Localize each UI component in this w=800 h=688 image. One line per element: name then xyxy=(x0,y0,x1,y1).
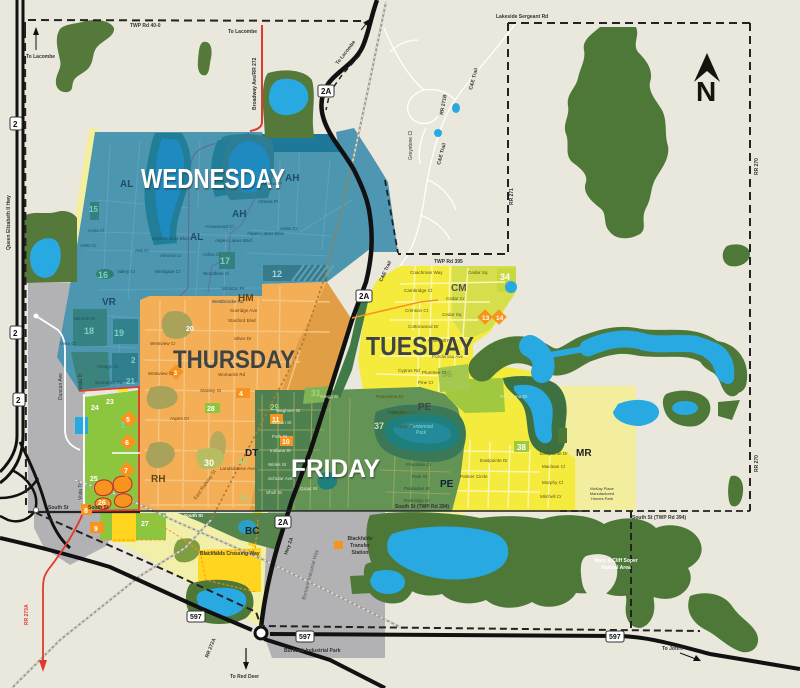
svg-text:Cedar Cr: Cedar Cr xyxy=(446,296,465,301)
svg-text:24: 24 xyxy=(91,405,99,412)
svg-text:Panorama Dr: Panorama Dr xyxy=(376,394,404,399)
svg-text:Woodbine Cl: Woodbine Cl xyxy=(203,271,229,276)
svg-text:30: 30 xyxy=(204,458,214,468)
svg-text:34: 34 xyxy=(500,272,510,282)
svg-text:Blackfalds Crossing Way: Blackfalds Crossing Way xyxy=(200,551,260,557)
svg-text:Eastpointe Dr: Eastpointe Dr xyxy=(540,451,568,456)
svg-text:38: 38 xyxy=(517,443,526,452)
svg-text:Cedar Sq: Cedar Sq xyxy=(468,270,488,275)
svg-text:South St: South St xyxy=(48,505,69,511)
svg-text:Landsdowne Ave: Landsdowne Ave xyxy=(220,466,255,471)
svg-text:Indiana St: Indiana St xyxy=(270,448,291,453)
svg-text:27: 27 xyxy=(141,521,149,528)
svg-text:Almond Cr: Almond Cr xyxy=(160,253,182,258)
svg-text:Park: Park xyxy=(416,430,427,436)
svg-text:Mitchell Cr: Mitchell Cr xyxy=(540,494,562,499)
svg-text:AH: AH xyxy=(232,209,246,220)
svg-text:Adina Cl: Adina Cl xyxy=(203,252,220,257)
svg-text:Vista Tr: Vista Tr xyxy=(78,373,84,390)
svg-text:Aspen Lakes Blvd: Aspen Lakes Blvd xyxy=(152,236,189,241)
svg-text:Broadway Ave/RR 272: Broadway Ave/RR 272 xyxy=(252,57,258,110)
svg-text:Valley Cr: Valley Cr xyxy=(117,269,136,274)
svg-text:17: 17 xyxy=(220,256,230,266)
svg-text:Shull St: Shull St xyxy=(266,490,283,495)
svg-text:32: 32 xyxy=(240,494,249,503)
svg-text:16: 16 xyxy=(98,270,108,280)
svg-text:Transfer: Transfer xyxy=(350,543,370,549)
svg-text:1: 1 xyxy=(121,421,126,430)
svg-text:597: 597 xyxy=(299,634,311,641)
svg-text:Aspen Dr: Aspen Dr xyxy=(170,416,190,421)
svg-text:Queen Elizabeth II Hwy: Queen Elizabeth II Hwy xyxy=(6,195,12,250)
svg-text:AH: AH xyxy=(285,173,299,184)
svg-text:Arrowwood Cl: Arrowwood Cl xyxy=(205,224,234,229)
svg-text:PE: PE xyxy=(440,479,454,490)
svg-text:Gregg St: Gregg St xyxy=(320,394,339,399)
svg-text:Cedar Sq: Cedar Sq xyxy=(442,312,462,317)
svg-text:Aztec Cr: Aztec Cr xyxy=(280,226,298,231)
svg-text:23: 23 xyxy=(106,399,114,406)
svg-text:Natural Area: Natural Area xyxy=(601,565,631,571)
svg-text:Vintage Cl: Vintage Cl xyxy=(97,364,118,369)
svg-text:To Lacombe: To Lacombe xyxy=(228,29,257,35)
svg-text:Churchill Pl: Churchill Pl xyxy=(428,338,451,343)
svg-text:Sunridge Ave: Sunridge Ave xyxy=(230,308,258,313)
svg-text:N: N xyxy=(696,76,716,107)
svg-text:WEDNESDAY: WEDNESDAY xyxy=(141,163,285,194)
svg-text:RR 271: RR 271 xyxy=(509,188,515,205)
svg-text:Ava Cr: Ava Cr xyxy=(135,248,149,253)
svg-text:Stanley St: Stanley St xyxy=(200,388,222,393)
svg-text:25: 25 xyxy=(90,476,98,483)
svg-text:7: 7 xyxy=(124,468,128,475)
svg-text:South St: South St xyxy=(184,513,203,518)
svg-text:Womacks Rd: Womacks Rd xyxy=(95,380,123,385)
svg-text:MR: MR xyxy=(576,448,592,459)
svg-text:Womacks Rd: Womacks Rd xyxy=(218,372,246,377)
svg-text:2A: 2A xyxy=(321,87,331,96)
svg-text:13: 13 xyxy=(482,315,490,322)
svg-text:Athena Pl: Athena Pl xyxy=(258,199,278,204)
svg-text:37: 37 xyxy=(374,421,384,431)
svg-text:CM: CM xyxy=(451,283,467,294)
svg-text:Crimson Ct: Crimson Ct xyxy=(405,308,429,313)
svg-text:Westbrooke Rd: Westbrooke Rd xyxy=(212,299,244,304)
svg-text:To Red Deer: To Red Deer xyxy=(230,674,259,680)
svg-text:Station: Station xyxy=(352,550,369,556)
svg-text:Westgate Cr: Westgate Cr xyxy=(155,269,181,274)
svg-text:Piper Cl: Piper Cl xyxy=(388,410,404,415)
svg-text:Burbank Industrial Park: Burbank Industrial Park xyxy=(284,648,341,654)
svg-text:TWP Rd 395: TWP Rd 395 xyxy=(434,259,463,265)
svg-text:PE: PE xyxy=(418,402,432,413)
svg-text:Plumtree Cr: Plumtree Cr xyxy=(422,370,447,375)
svg-text:2A: 2A xyxy=(359,292,369,301)
svg-text:Murphy Cl: Murphy Cl xyxy=(542,480,563,485)
svg-text:Coachman Way: Coachman Way xyxy=(410,270,443,275)
svg-text:Pondside Cr: Pondside Cr xyxy=(406,462,432,467)
svg-text:Wilson St: Wilson St xyxy=(272,420,292,425)
svg-text:28: 28 xyxy=(207,406,215,413)
svg-text:To Joffre: To Joffre xyxy=(662,646,683,652)
svg-text:Winston Pl: Winston Pl xyxy=(222,286,244,291)
svg-text:VR: VR xyxy=(102,297,117,308)
svg-text:4: 4 xyxy=(239,391,243,398)
svg-text:10: 10 xyxy=(282,439,290,446)
svg-text:Piper Cl: Piper Cl xyxy=(397,424,413,429)
svg-text:AL: AL xyxy=(190,232,203,243)
svg-text:Anna Cl: Anna Cl xyxy=(88,228,104,233)
svg-text:9: 9 xyxy=(94,526,98,533)
svg-text:FRIDAY: FRIDAY xyxy=(291,455,380,483)
svg-text:Park St: Park St xyxy=(272,434,288,439)
svg-text:Cyprus Rd: Cyprus Rd xyxy=(398,368,420,373)
svg-text:2: 2 xyxy=(131,356,136,365)
svg-text:Valmont St: Valmont St xyxy=(73,316,96,321)
svg-text:Vista Tr: Vista Tr xyxy=(78,483,84,500)
svg-text:DT: DT xyxy=(245,448,258,459)
svg-text:Park St: Park St xyxy=(412,474,428,479)
svg-text:12: 12 xyxy=(272,269,282,279)
svg-text:20: 20 xyxy=(186,326,194,333)
svg-text:South St: South St xyxy=(88,505,109,511)
svg-text:Palisades St: Palisades St xyxy=(404,486,430,491)
svg-text:South St (TWP Rd 394): South St (TWP Rd 394) xyxy=(395,504,449,510)
svg-text:Schular Ave: Schular Ave xyxy=(268,476,293,481)
svg-text:Blackfalds: Blackfalds xyxy=(347,536,372,542)
svg-text:Vista Cl: Vista Cl xyxy=(60,341,76,346)
svg-text:Silver Dr: Silver Dr xyxy=(234,336,252,341)
svg-text:RH: RH xyxy=(151,474,165,485)
svg-text:21: 21 xyxy=(126,377,135,386)
svg-text:RR 273A: RR 273A xyxy=(24,604,30,625)
svg-text:TWP Rd 40-0: TWP Rd 40-0 xyxy=(130,23,161,29)
svg-text:18: 18 xyxy=(84,326,94,336)
svg-text:Grout St: Grout St xyxy=(300,486,318,491)
svg-text:Winks St: Winks St xyxy=(268,462,287,467)
svg-text:2: 2 xyxy=(16,396,21,405)
svg-text:Palmer Circle: Palmer Circle xyxy=(460,474,488,479)
svg-text:BC: BC xyxy=(245,526,259,537)
svg-text:2: 2 xyxy=(13,329,18,338)
svg-text:To Lacombe: To Lacombe xyxy=(26,54,55,60)
svg-text:South St (TWP Rd 394): South St (TWP Rd 394) xyxy=(632,515,686,521)
svg-text:5: 5 xyxy=(126,417,130,424)
svg-text:14: 14 xyxy=(496,315,504,322)
svg-text:AL: AL xyxy=(120,179,133,190)
svg-text:6: 6 xyxy=(125,440,129,447)
svg-text:RR 270: RR 270 xyxy=(754,455,760,472)
svg-text:Stanford Blvd: Stanford Blvd xyxy=(228,318,256,323)
svg-text:Mary & Cliff Soper: Mary & Cliff Soper xyxy=(594,558,637,564)
svg-text:Greystone Cl: Greystone Cl xyxy=(408,131,414,160)
svg-text:RR 270: RR 270 xyxy=(754,158,760,175)
svg-text:597: 597 xyxy=(190,614,202,621)
svg-text:Eastpointe Dr: Eastpointe Dr xyxy=(480,458,508,463)
svg-text:Ponderosa Ave: Ponderosa Ave xyxy=(432,354,464,359)
svg-text:2A: 2A xyxy=(278,518,288,527)
svg-text:Westview Cr: Westview Cr xyxy=(148,371,174,376)
svg-text:3: 3 xyxy=(174,370,178,377)
svg-text:Parkridge Cr: Parkridge Cr xyxy=(404,498,430,503)
svg-text:Maclean Cl: Maclean Cl xyxy=(542,464,565,469)
svg-text:15: 15 xyxy=(89,205,98,214)
svg-text:Duncan Ave: Duncan Ave xyxy=(58,373,64,400)
svg-text:Aspen Lakes Blvd: Aspen Lakes Blvd xyxy=(215,238,252,243)
svg-text:Aspen Lakes Blvd: Aspen Lakes Blvd xyxy=(247,231,284,236)
svg-text:Athena Pl: Athena Pl xyxy=(262,181,282,186)
svg-text:Homes Park: Homes Park xyxy=(591,496,613,501)
svg-text:Pine Cr: Pine Cr xyxy=(418,380,434,385)
svg-text:19: 19 xyxy=(114,328,124,338)
svg-text:31: 31 xyxy=(238,457,247,466)
svg-text:Cambridge Cl: Cambridge Cl xyxy=(404,288,432,293)
svg-text:Lakeside Sergeant Rd: Lakeside Sergeant Rd xyxy=(496,14,548,20)
svg-text:Westview Cr: Westview Cr xyxy=(150,341,176,346)
svg-text:597: 597 xyxy=(609,634,621,641)
svg-text:Panorama Dr: Panorama Dr xyxy=(500,394,528,399)
svg-text:Waghorn St: Waghorn St xyxy=(276,408,301,413)
svg-text:Arlen Cl: Arlen Cl xyxy=(80,243,96,248)
svg-text:THURSDAY: THURSDAY xyxy=(173,346,295,374)
svg-text:2: 2 xyxy=(13,120,18,129)
svg-text:Cottonwood Dr: Cottonwood Dr xyxy=(408,324,439,329)
